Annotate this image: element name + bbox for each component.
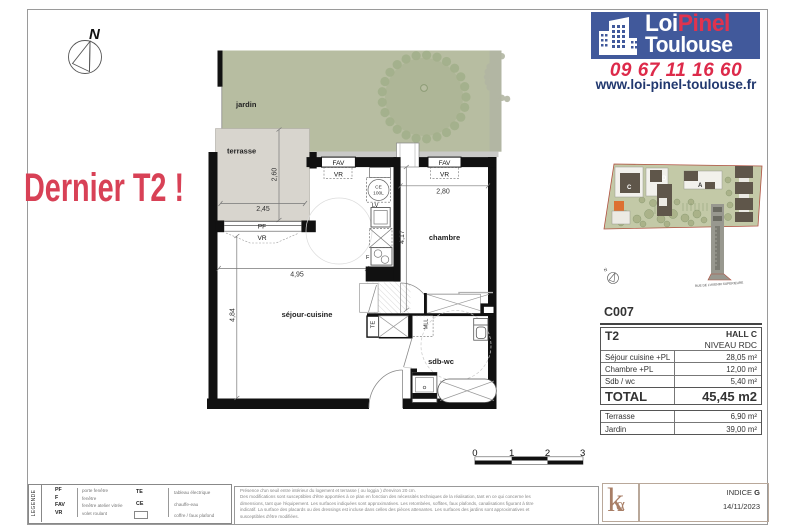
svg-text:2,60: 2,60	[272, 168, 279, 182]
svg-text:D: D	[662, 176, 667, 182]
svg-text:VR: VR	[440, 172, 449, 179]
svg-text:FAV: FAV	[332, 160, 344, 167]
svg-text:terrasse: terrasse	[227, 147, 256, 156]
svg-text:TE: TE	[371, 321, 377, 329]
svg-text:FAV: FAV	[439, 160, 451, 167]
svg-text:VR: VR	[334, 172, 343, 179]
svg-text:VR: VR	[257, 235, 266, 242]
svg-text:séjour-cuisine: séjour-cuisine	[282, 310, 333, 319]
svg-text:A: A	[698, 183, 703, 189]
svg-text:F: F	[366, 255, 370, 261]
svg-text:4,95: 4,95	[290, 272, 304, 279]
svg-text:2,80: 2,80	[436, 189, 450, 196]
svg-text:4,84: 4,84	[229, 308, 236, 322]
svg-text:C: C	[627, 185, 632, 191]
svg-text:N: N	[89, 26, 101, 43]
svg-text:100L: 100L	[373, 191, 384, 197]
svg-text:2,45: 2,45	[256, 206, 270, 213]
svg-text:sdb-wc: sdb-wc	[428, 357, 454, 366]
svg-text:PF: PF	[258, 224, 266, 231]
svg-text:4,17: 4,17	[399, 230, 406, 244]
svg-text:chambre: chambre	[429, 233, 460, 242]
svg-text:N: N	[603, 266, 609, 272]
svg-text:jardin: jardin	[235, 100, 257, 109]
svg-text:RUE DE L'AVENIR SUPERIEURE: RUE DE L'AVENIR SUPERIEURE	[695, 281, 744, 288]
svg-text:CE: CE	[375, 185, 382, 191]
svg-text:MLL: MLL	[424, 319, 430, 330]
